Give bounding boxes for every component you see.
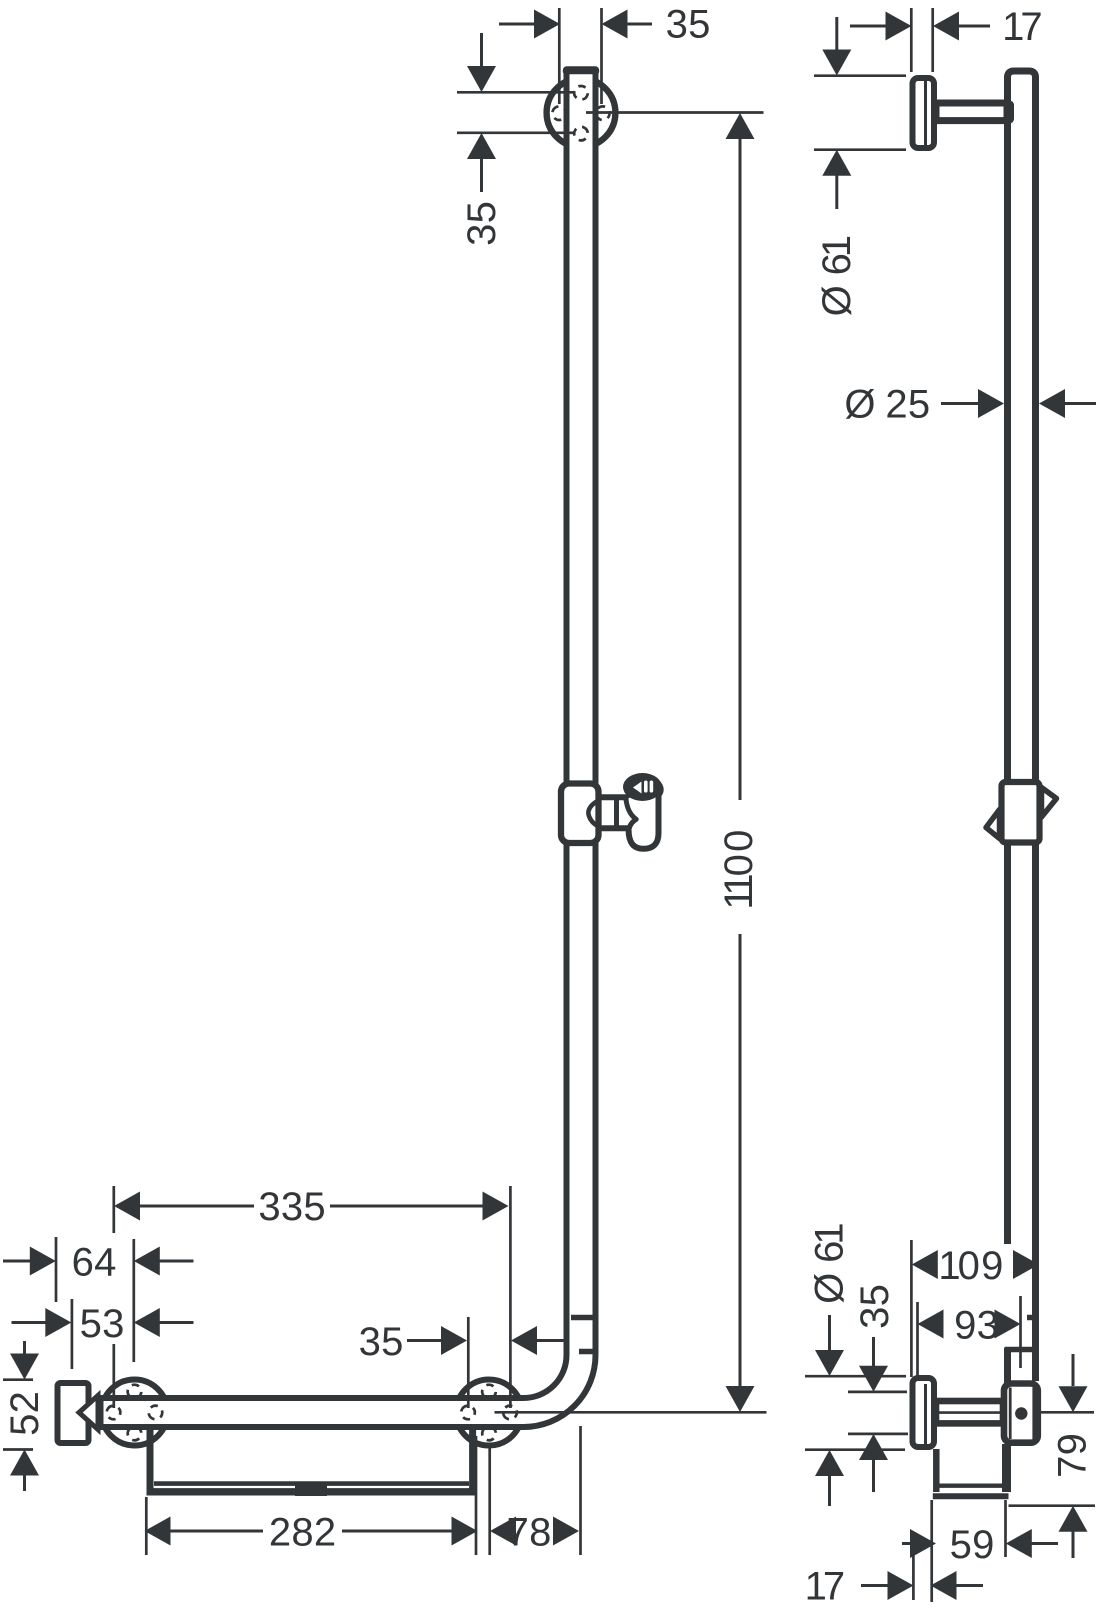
svg-text:35: 35 — [666, 2, 711, 46]
svg-text:59: 59 — [950, 1523, 995, 1567]
svg-text:Ø25: Ø25 — [844, 382, 930, 426]
svg-text:64: 64 — [72, 1240, 117, 1284]
svg-text:109: 109 — [938, 1244, 1003, 1288]
svg-text:93: 93 — [954, 1303, 999, 1347]
svg-text:35: 35 — [853, 1284, 897, 1329]
svg-text:Ø61: Ø61 — [815, 235, 859, 317]
svg-text:79: 79 — [1050, 1433, 1094, 1478]
svg-text:335: 335 — [258, 1185, 325, 1229]
svg-text:Ø61: Ø61 — [807, 1222, 851, 1304]
svg-text:17: 17 — [805, 1564, 846, 1608]
svg-text:1100: 1100 — [717, 830, 761, 910]
svg-text:78: 78 — [507, 1510, 552, 1554]
svg-text:282: 282 — [269, 1510, 336, 1554]
svg-text:17: 17 — [1002, 5, 1043, 49]
svg-text:35: 35 — [460, 201, 504, 246]
svg-text:52: 52 — [3, 1391, 47, 1436]
svg-text:53: 53 — [80, 1302, 125, 1346]
svg-text:35: 35 — [359, 1320, 404, 1364]
